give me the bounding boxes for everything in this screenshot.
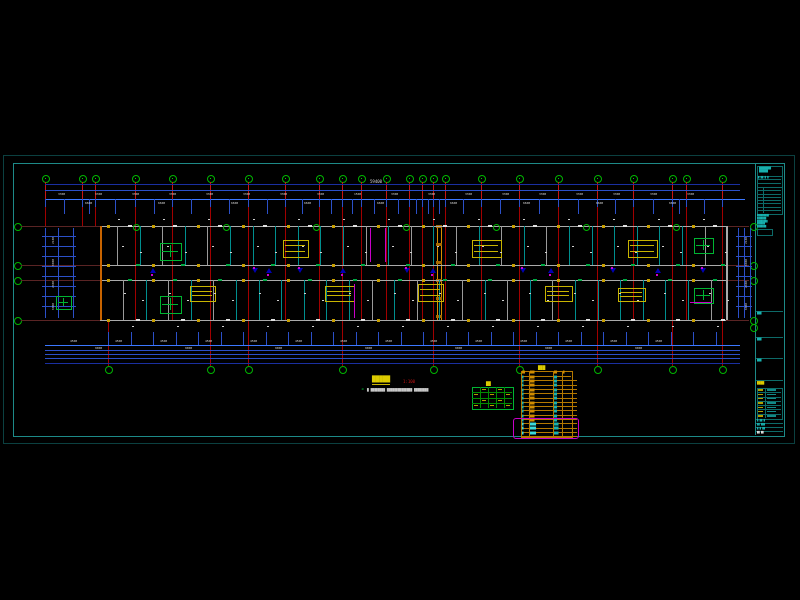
cad-hline bbox=[45, 354, 740, 355]
dim-tick bbox=[633, 199, 634, 207]
dim-text: 3300 bbox=[280, 193, 287, 196]
door-mark bbox=[226, 319, 230, 321]
grid-bubble-top bbox=[594, 175, 602, 183]
grid-bubble-top bbox=[358, 175, 366, 183]
magenta-dot bbox=[151, 274, 153, 276]
dim-mark bbox=[343, 219, 345, 220]
wall-node-dot bbox=[467, 319, 470, 322]
partition-wall bbox=[530, 280, 531, 320]
dim-tick bbox=[491, 332, 492, 345]
dim-tick bbox=[248, 199, 249, 207]
tb-grid bbox=[757, 183, 781, 184]
dim-tick bbox=[42, 276, 76, 277]
grid-line-red bbox=[686, 226, 687, 320]
dim-text: 3300 bbox=[613, 193, 620, 196]
grid-bubble-top bbox=[207, 175, 215, 183]
dim-mark bbox=[537, 326, 539, 327]
dim-tick bbox=[401, 332, 402, 345]
magenta-dot bbox=[701, 267, 703, 269]
grid-line-red bbox=[722, 226, 723, 320]
partition-wall bbox=[524, 226, 525, 265]
room-label-mark bbox=[635, 252, 637, 253]
grid-bubble-top bbox=[169, 175, 177, 183]
dim-text: 3300 bbox=[576, 193, 583, 196]
corridor-arrow-icon bbox=[430, 268, 436, 273]
wall-node-dot bbox=[557, 225, 560, 228]
stair-block bbox=[190, 286, 216, 302]
door-mark bbox=[361, 319, 365, 321]
magenta-dot bbox=[549, 274, 551, 276]
grid-bubble-dot bbox=[45, 178, 46, 179]
grid-bubble-top bbox=[79, 175, 87, 183]
dim-tick bbox=[153, 332, 154, 345]
wall-node-dot bbox=[242, 264, 245, 267]
door-mark bbox=[218, 225, 222, 227]
dim-text: 4500 bbox=[475, 340, 482, 343]
room-label-mark bbox=[574, 293, 576, 294]
wall-node-dot bbox=[557, 279, 560, 282]
dim-text: 4500 bbox=[430, 340, 437, 343]
wall-node-dot bbox=[602, 225, 605, 228]
legend-grid bbox=[496, 387, 497, 408]
magenta-dot bbox=[253, 267, 255, 269]
window-mark bbox=[398, 279, 402, 281]
partition-wall bbox=[462, 280, 463, 320]
cad-hline bbox=[45, 363, 740, 364]
magenta-dot bbox=[298, 267, 300, 269]
tb-cell-mark bbox=[767, 389, 776, 390]
wall-node-dot bbox=[107, 264, 110, 267]
schedule-grid bbox=[521, 376, 571, 377]
dim-text: 4500 bbox=[70, 340, 77, 343]
magenta-line bbox=[370, 228, 371, 262]
grid-line-red bbox=[386, 226, 387, 320]
partition-wall bbox=[411, 226, 412, 265]
grid-bubble-top bbox=[245, 175, 253, 183]
window-mark bbox=[353, 279, 357, 281]
schedule-cell: ███ bbox=[530, 385, 535, 388]
grid-bubble-dot bbox=[519, 178, 520, 179]
dim-mark bbox=[388, 219, 390, 220]
partition-wall bbox=[659, 226, 660, 265]
cad-hline bbox=[45, 190, 740, 191]
wall-node-dot bbox=[332, 319, 335, 322]
grid-line-red bbox=[558, 226, 559, 320]
dim-tick bbox=[439, 199, 440, 214]
dim-text: 9000 bbox=[95, 347, 102, 350]
schedule-cell: ██ bbox=[554, 377, 557, 380]
window-mark bbox=[316, 264, 320, 266]
partition-wall bbox=[614, 226, 615, 265]
room-label-mark bbox=[140, 252, 142, 253]
tb-grid bbox=[757, 207, 781, 208]
grid-bubble-left bbox=[14, 223, 22, 231]
room-label-mark bbox=[122, 246, 124, 247]
wall-node-dot bbox=[287, 264, 290, 267]
corridor-arrow-icon bbox=[340, 268, 346, 273]
grid-bubble-bottom bbox=[339, 366, 347, 374]
partition-wall bbox=[507, 280, 508, 320]
window-mark bbox=[308, 279, 312, 281]
partition-wall bbox=[485, 280, 486, 320]
schedule-cell: ███ bbox=[530, 403, 535, 406]
dim-tick bbox=[513, 332, 514, 345]
dim-tick bbox=[361, 199, 362, 207]
grid-bubble-dot bbox=[285, 178, 286, 179]
wall-node-dot bbox=[332, 225, 335, 228]
dim-mark bbox=[118, 219, 120, 220]
dim-tick bbox=[422, 199, 423, 207]
grid-bubble-dot bbox=[342, 178, 343, 179]
partition-wall bbox=[236, 280, 237, 320]
window-mark bbox=[533, 279, 537, 281]
corridor-arrow-icon bbox=[266, 268, 272, 273]
dim-tick bbox=[558, 199, 559, 207]
wall-node-dot bbox=[692, 264, 695, 267]
door-mark bbox=[451, 319, 455, 321]
dim-tick bbox=[578, 199, 579, 214]
tb-grid bbox=[757, 197, 781, 198]
partition-wall bbox=[281, 280, 282, 320]
grid-line-red bbox=[361, 226, 362, 320]
grid-line-red bbox=[248, 226, 249, 320]
wall-node-dot bbox=[647, 319, 650, 322]
stair-tread bbox=[630, 251, 654, 252]
grid-bubble-dot bbox=[210, 178, 211, 179]
wall-axis-ring bbox=[313, 224, 320, 231]
wall-node-dot bbox=[377, 319, 380, 322]
dim-mark bbox=[433, 219, 435, 220]
room-label-mark bbox=[707, 246, 709, 247]
dim-text: 4500 bbox=[340, 340, 347, 343]
wall-axis-ring bbox=[583, 224, 590, 231]
tb-cell-mark bbox=[767, 402, 776, 403]
wall-node-dot bbox=[287, 225, 290, 228]
window-mark bbox=[443, 279, 447, 281]
dim-tick bbox=[45, 199, 46, 207]
room-label-mark bbox=[590, 252, 592, 253]
room-label-mark bbox=[592, 300, 594, 301]
door-mark bbox=[668, 225, 672, 227]
legend-grid bbox=[472, 403, 512, 404]
magenta-dot bbox=[431, 274, 433, 276]
dim-mark bbox=[298, 219, 300, 220]
partition-wall bbox=[117, 226, 118, 265]
door-mark bbox=[263, 225, 267, 227]
grid-line-red bbox=[248, 320, 249, 366]
dim-tick bbox=[463, 199, 464, 214]
dim-tick bbox=[671, 332, 672, 345]
room-label-mark bbox=[365, 252, 367, 253]
room-label-mark bbox=[662, 246, 664, 247]
wall-node-dot bbox=[467, 225, 470, 228]
wall-node-dot bbox=[377, 279, 380, 282]
grid-line-red bbox=[422, 226, 423, 320]
grid-bubble-dot bbox=[422, 178, 423, 179]
room-label-mark bbox=[727, 300, 729, 301]
dim-tick bbox=[446, 332, 447, 345]
legend-cell-mark bbox=[474, 394, 478, 395]
window-mark bbox=[668, 279, 672, 281]
dim-tick bbox=[409, 199, 410, 207]
wall-node-dot bbox=[512, 319, 515, 322]
dim-tick bbox=[558, 332, 559, 345]
cad-hline bbox=[45, 358, 740, 359]
dim-tick bbox=[736, 246, 752, 247]
room-label-mark bbox=[709, 293, 711, 294]
dim-text: 4500 bbox=[295, 340, 302, 343]
window-mark bbox=[173, 279, 177, 281]
partition-wall bbox=[320, 226, 321, 265]
dim-tick bbox=[267, 199, 268, 214]
grid-bubble-top bbox=[132, 175, 140, 183]
dim-text: 4500 bbox=[115, 340, 122, 343]
schedule-cell: ██ bbox=[554, 411, 557, 414]
room-label-mark bbox=[214, 293, 216, 294]
dim-tick bbox=[42, 266, 76, 267]
dim-tick bbox=[229, 199, 230, 214]
dim-text: 6000 bbox=[52, 259, 55, 266]
wall-node-dot bbox=[197, 319, 200, 322]
dim-text: 3300 bbox=[391, 193, 398, 196]
dim-tick bbox=[302, 199, 303, 214]
tb-cell-mark bbox=[767, 407, 776, 408]
door-mark bbox=[578, 225, 582, 227]
dim-text: 3300 bbox=[206, 193, 213, 196]
grid-bubble-dot bbox=[633, 178, 634, 179]
legend-cell-mark bbox=[482, 400, 486, 401]
grid-bubble-left bbox=[14, 262, 22, 270]
dim-tick bbox=[539, 199, 540, 214]
dim-mark bbox=[613, 219, 615, 220]
room-label-mark bbox=[680, 252, 682, 253]
grid-line-red bbox=[210, 320, 211, 366]
grid-ext-line bbox=[21, 280, 100, 281]
room-label-mark bbox=[437, 246, 439, 247]
tb-section-label: ███ bbox=[757, 313, 762, 316]
magenta-line bbox=[690, 302, 712, 303]
room-label-mark bbox=[637, 300, 639, 301]
dim-tick bbox=[82, 199, 83, 207]
grid-bubble-dot bbox=[135, 178, 136, 179]
room-label-mark bbox=[212, 246, 214, 247]
dim-text: 2400 bbox=[52, 281, 55, 288]
window-mark bbox=[676, 264, 680, 266]
door-mark bbox=[271, 319, 275, 321]
tb-cell-mark bbox=[767, 398, 776, 399]
grid-bubble-bottom bbox=[669, 366, 677, 374]
grid-bubble-top bbox=[516, 175, 524, 183]
left-end-wall bbox=[100, 226, 102, 320]
tb-small-box bbox=[757, 229, 773, 236]
wall-node-dot bbox=[197, 225, 200, 228]
window-mark bbox=[496, 264, 500, 266]
dim-tick bbox=[686, 199, 687, 207]
room-label-mark bbox=[347, 246, 349, 247]
dim-text: 9000 bbox=[185, 347, 192, 350]
dim-text: 6600 bbox=[377, 202, 384, 205]
legend-grid bbox=[472, 392, 512, 393]
room-label-mark bbox=[529, 293, 531, 294]
tb-bottom-text: █ ██ █ bbox=[757, 420, 765, 422]
tb-cell-mark bbox=[758, 415, 763, 416]
dim-tick bbox=[154, 199, 155, 214]
partition-wall bbox=[304, 280, 305, 320]
dim-tick bbox=[679, 199, 680, 214]
room-label-mark bbox=[500, 252, 502, 253]
grid-bubble-top bbox=[555, 175, 563, 183]
grid-bubble-dot bbox=[672, 178, 673, 179]
tb-grid bbox=[757, 179, 781, 180]
dim-text: 3300 bbox=[539, 193, 546, 196]
legend-cell-mark bbox=[498, 400, 502, 401]
schedule-cell: ██ bbox=[554, 385, 557, 388]
dim-text: 4500 bbox=[250, 340, 257, 343]
window-mark bbox=[226, 264, 230, 266]
grid-bubble-top bbox=[92, 175, 100, 183]
door-mark bbox=[308, 225, 312, 227]
grid-line-red bbox=[210, 226, 211, 320]
dim-text: 4500 bbox=[610, 340, 617, 343]
corridor-arrow-icon bbox=[655, 268, 661, 273]
dim-mark bbox=[568, 219, 570, 220]
dim-tick bbox=[736, 276, 752, 277]
wall-node-dot bbox=[512, 264, 515, 267]
window-mark bbox=[128, 279, 132, 281]
wall-node-dot bbox=[647, 279, 650, 282]
tb-section-label: ███ bbox=[757, 339, 762, 342]
grid-bubble-top bbox=[419, 175, 427, 183]
room-label-mark bbox=[412, 300, 414, 301]
grid-line-red bbox=[722, 320, 723, 366]
wall-node-dot bbox=[287, 279, 290, 282]
dim-line-left bbox=[45, 228, 46, 318]
dim-mark bbox=[222, 326, 224, 327]
dim-tick bbox=[42, 256, 76, 257]
tb-cell-mark bbox=[758, 398, 763, 399]
dim-tick bbox=[95, 199, 96, 207]
stair-tread bbox=[327, 291, 351, 292]
grid-bubble-bottom bbox=[594, 366, 602, 374]
room-label-mark bbox=[619, 293, 621, 294]
grid-bubble-right bbox=[750, 324, 758, 332]
room-label-mark bbox=[394, 293, 396, 294]
window-mark bbox=[451, 264, 455, 266]
schedule-cell: █ bbox=[522, 377, 524, 380]
dim-text: 4500 bbox=[565, 340, 572, 343]
tb-grid bbox=[757, 190, 781, 191]
wall-node-dot bbox=[692, 279, 695, 282]
dim-tick bbox=[653, 199, 654, 214]
dim-text: 4500 bbox=[520, 340, 527, 343]
window-mark bbox=[631, 264, 635, 266]
partition-wall bbox=[433, 226, 434, 265]
legend-cell-mark bbox=[506, 405, 510, 406]
partition-wall bbox=[388, 226, 389, 265]
grid-bubble-dot bbox=[481, 178, 482, 179]
wall-node-dot bbox=[692, 225, 695, 228]
door-mark bbox=[586, 319, 590, 321]
door-mark bbox=[136, 319, 140, 321]
dim-tick bbox=[243, 332, 244, 345]
joint-hatch bbox=[436, 261, 442, 264]
dim-text: 3300 bbox=[687, 193, 694, 196]
partition-wall bbox=[456, 226, 457, 265]
dim-tick bbox=[288, 332, 289, 345]
dim-text: 6600 bbox=[85, 202, 92, 205]
legend-cell-mark bbox=[506, 394, 510, 395]
partition-wall bbox=[366, 226, 367, 265]
dim-tick bbox=[736, 266, 752, 267]
partition-wall bbox=[185, 226, 186, 265]
wall-node-dot bbox=[602, 319, 605, 322]
partition-wall bbox=[146, 280, 147, 320]
cad-hline bbox=[45, 199, 745, 200]
wall-axis-ring bbox=[133, 224, 140, 231]
magenta-dot bbox=[267, 274, 269, 276]
room-label-mark bbox=[187, 300, 189, 301]
dim-tick bbox=[210, 199, 211, 207]
wall-node-dot bbox=[152, 319, 155, 322]
dim-line-left bbox=[73, 228, 74, 318]
dim-mark bbox=[208, 219, 210, 220]
schedule-cell: ███ bbox=[530, 411, 535, 414]
tb-cell-mark bbox=[758, 407, 763, 408]
door-mark bbox=[398, 225, 402, 227]
dim-tick bbox=[356, 332, 357, 345]
dim-mark bbox=[163, 219, 165, 220]
room-label-mark bbox=[169, 293, 171, 294]
window-mark bbox=[623, 279, 627, 281]
partition-wall bbox=[343, 226, 344, 265]
door-mark bbox=[713, 225, 717, 227]
dim-tick bbox=[285, 199, 286, 207]
room-label-mark bbox=[349, 293, 351, 294]
wall-node-dot bbox=[107, 279, 110, 282]
dim-tick bbox=[736, 296, 752, 297]
dim-tick bbox=[433, 199, 434, 207]
dim-tick bbox=[626, 332, 627, 345]
wall-node-dot bbox=[152, 279, 155, 282]
schedule-cell: █ bbox=[522, 398, 524, 401]
door-mark bbox=[316, 319, 320, 321]
partition-wall bbox=[394, 280, 395, 320]
magenta-dot bbox=[656, 274, 658, 276]
wall-node-dot bbox=[602, 279, 605, 282]
dim-tick bbox=[333, 332, 334, 345]
dim-tick bbox=[416, 199, 417, 214]
dim-text: 6600 bbox=[304, 202, 311, 205]
grid-bubble-bottom bbox=[207, 366, 215, 374]
magenta-dot bbox=[521, 267, 523, 269]
schedule-cell: █ bbox=[522, 385, 524, 388]
grid-line-red bbox=[672, 226, 673, 320]
room-label-mark bbox=[439, 293, 441, 294]
schedule-header-cell: ██ bbox=[554, 372, 557, 375]
wall-node-dot bbox=[152, 264, 155, 267]
schedule-header-cell: ███ bbox=[530, 372, 535, 375]
corridor-arrow-icon bbox=[548, 268, 554, 273]
stair-tread bbox=[420, 289, 440, 290]
wall-node-dot bbox=[512, 225, 515, 228]
stair-tread bbox=[285, 251, 305, 252]
grid-line-red bbox=[519, 320, 520, 366]
dim-line-right bbox=[738, 228, 739, 318]
wall-node-dot bbox=[242, 319, 245, 322]
door-mark bbox=[488, 225, 492, 227]
grid-bubble-top bbox=[478, 175, 486, 183]
schedule-cell: ███ bbox=[530, 377, 535, 380]
